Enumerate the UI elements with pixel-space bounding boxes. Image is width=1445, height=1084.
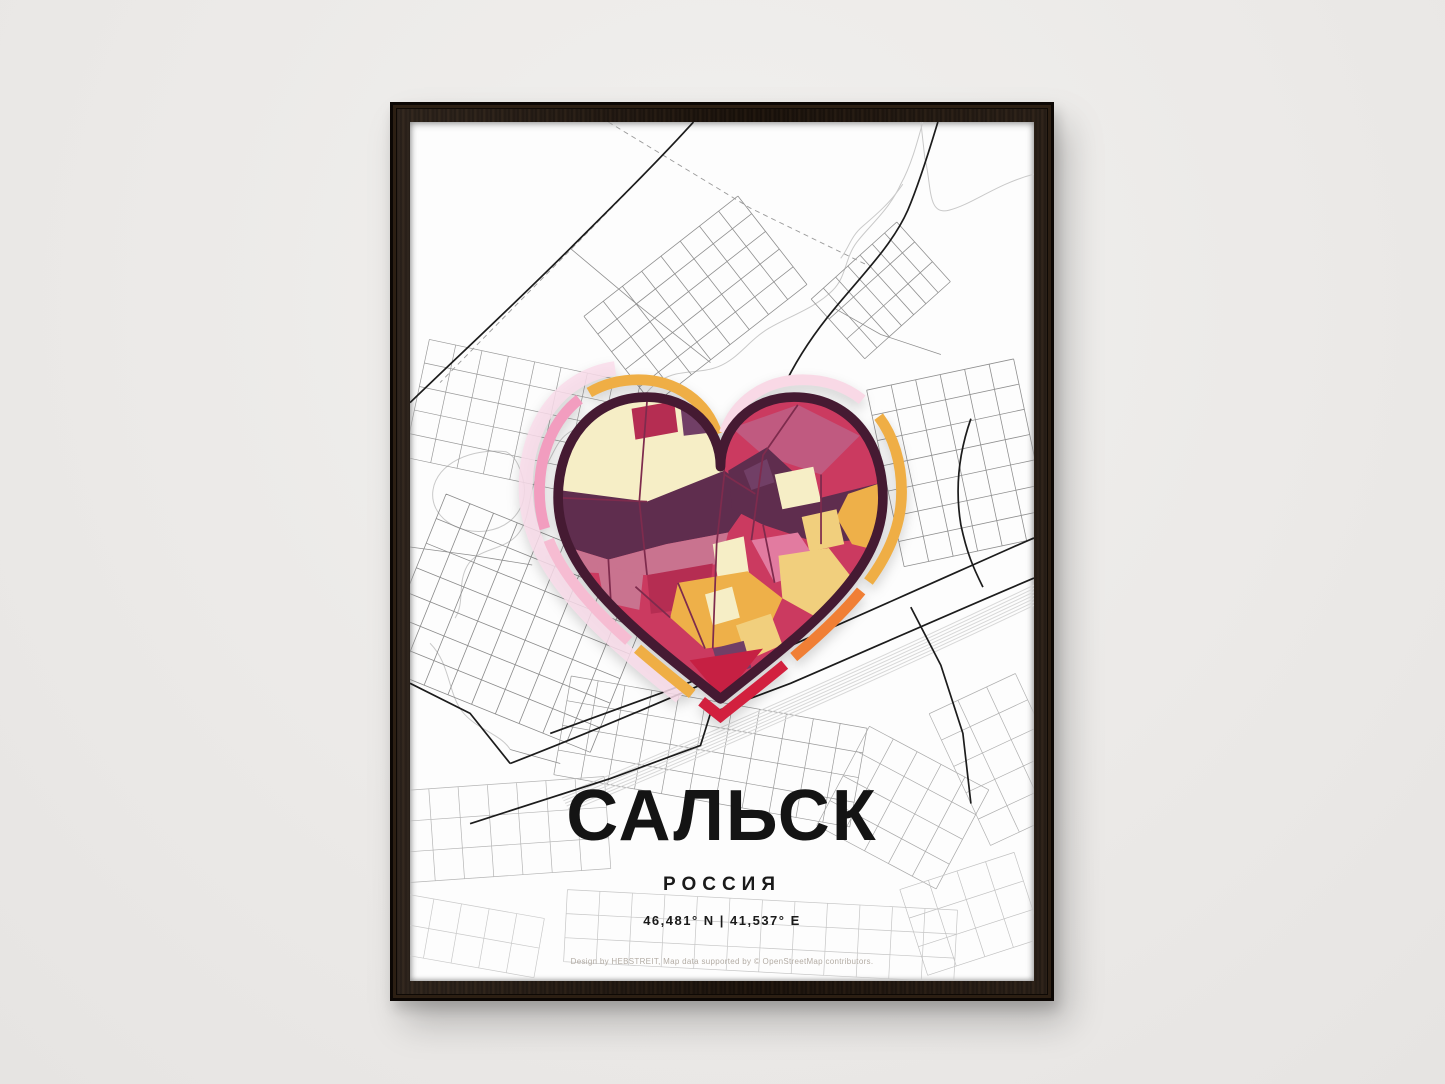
city-map-svg (410, 122, 1034, 981)
boundary-layer (440, 122, 866, 383)
wall: САЛЬСК РОССИЯ 46,481° N | 41,537° E Desi… (0, 0, 1445, 1084)
heart-graphic (526, 367, 916, 729)
heart-interior (558, 393, 883, 699)
poster: САЛЬСК РОССИЯ 46,481° N | 41,537° E Desi… (410, 122, 1034, 981)
picture-frame: САЛЬСК РОССИЯ 46,481° N | 41,537° E Desi… (390, 102, 1054, 1001)
